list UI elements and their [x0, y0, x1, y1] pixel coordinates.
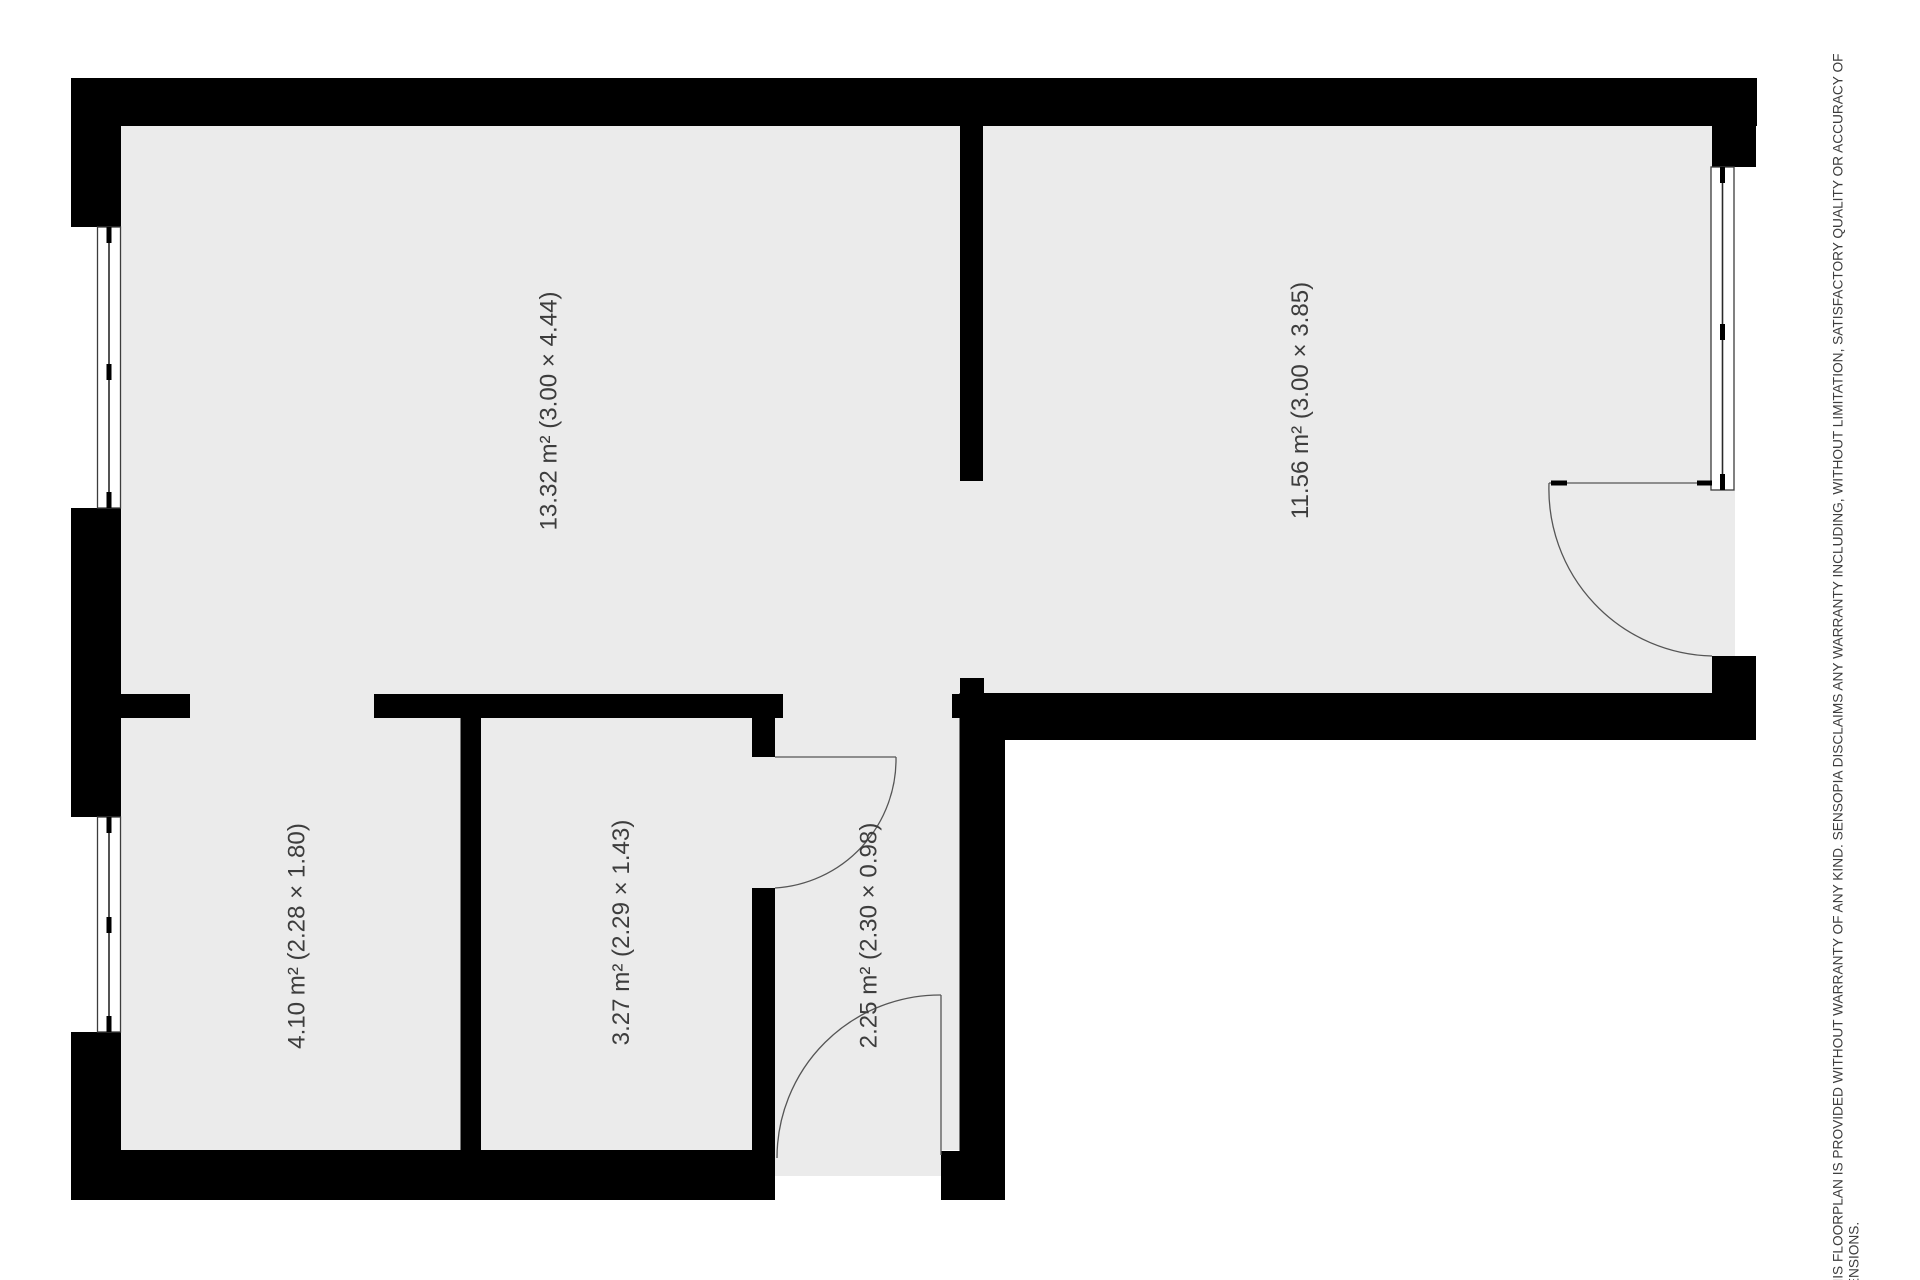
svg-text:11.56 m² (3.00 × 3.85): 11.56 m² (3.00 × 3.85) — [1287, 282, 1314, 519]
svg-text:13.32 m² (3.00 × 4.44): 13.32 m² (3.00 × 4.44) — [536, 291, 563, 530]
svg-text:4.10 m² (2.28 × 1.80): 4.10 m² (2.28 × 1.80) — [284, 823, 311, 1049]
svg-text:THIS FLOORPLAN IS PROVIDED WIT: THIS FLOORPLAN IS PROVIDED WITHOUT WARRA… — [1831, 54, 1846, 1280]
svg-text:THIS FLOORPLAN AND ITS DIMENSI: THIS FLOORPLAN AND ITS DIMENSIONS. — [1847, 1222, 1862, 1280]
svg-text:3.27 m² (2.29 × 1.43): 3.27 m² (2.29 × 1.43) — [608, 820, 635, 1046]
svg-text:2.25 m² (2.30 × 0.98): 2.25 m² (2.30 × 0.98) — [856, 823, 883, 1049]
